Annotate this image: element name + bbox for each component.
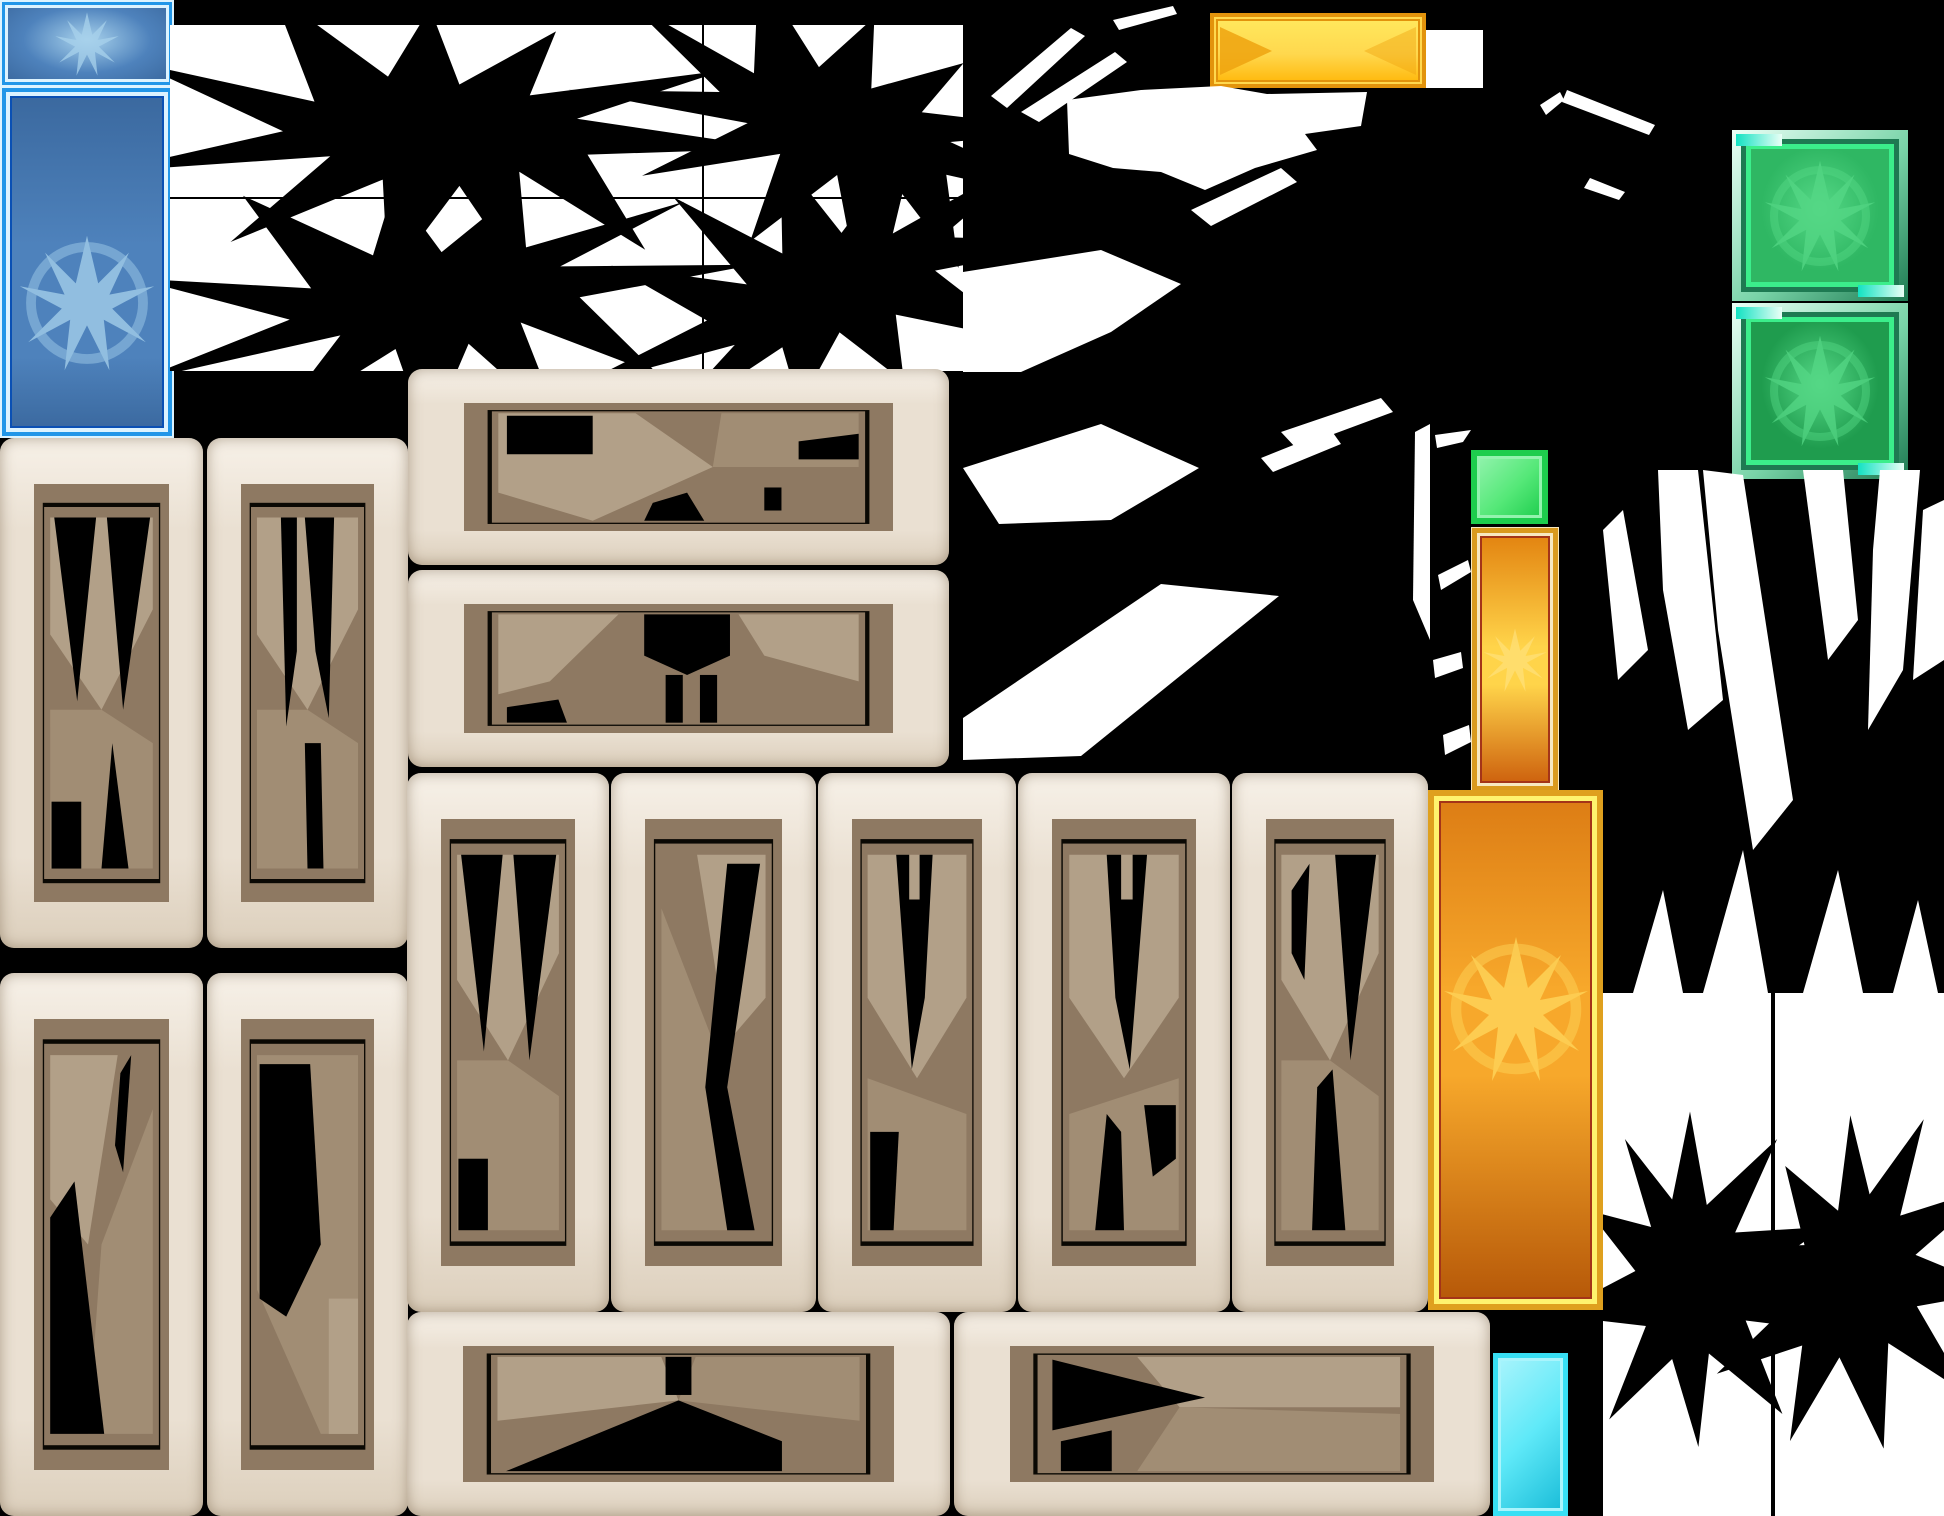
- mask-fragment-field: [963, 0, 1430, 790]
- stone-plate: [0, 973, 203, 1516]
- gold-panel-sprite: [1428, 790, 1603, 1310]
- teal-corner-accent: [1858, 285, 1904, 297]
- stone-plate-carving: [241, 484, 374, 902]
- stone-plate: [611, 773, 816, 1312]
- stone-plate: [0, 438, 203, 948]
- stone-plate: [207, 973, 408, 1516]
- star-emblem-icon: [1482, 627, 1548, 693]
- stone-plate-carving: [852, 819, 982, 1266]
- star-emblem-icon: [1760, 158, 1880, 273]
- green-gem-sprite-1: [1732, 130, 1908, 301]
- star-emblem-icon: [52, 11, 122, 77]
- blue-panel-tall-sprite: [2, 88, 172, 436]
- stone-bar-carving: [464, 403, 893, 531]
- burst-mask-sheet: [170, 25, 963, 371]
- stone-plate-carving: [1266, 819, 1394, 1266]
- stone-plate: [207, 438, 408, 948]
- white-tile-sprite: [1426, 30, 1483, 88]
- atlas-seam: [170, 197, 963, 199]
- stone-bar: [408, 369, 949, 565]
- stone-plate-carving: [441, 819, 575, 1266]
- stone-bar-carving: [463, 1346, 894, 1482]
- stone-plate: [407, 773, 609, 1312]
- mask-slashes: [1433, 430, 1473, 800]
- stone-bar: [954, 1312, 1490, 1516]
- cyan-tile-sprite: [1493, 1353, 1568, 1516]
- mask-slash-field: [1484, 80, 1734, 220]
- green-gem-face: [1746, 317, 1894, 465]
- stone-plate-carving: [34, 484, 169, 902]
- stone-plate-carving: [1052, 819, 1196, 1266]
- stone-plate-carving: [34, 1019, 169, 1470]
- star-emblem-icon: [1441, 934, 1591, 1084]
- green-gem-sprite-2: [1732, 303, 1908, 479]
- burst-mask-field: [1603, 470, 1944, 1516]
- texture-atlas-canvas: [0, 0, 1944, 1516]
- stone-plate: [1232, 773, 1428, 1312]
- green-tile-sprite: [1471, 450, 1548, 524]
- green-gem-face: [1746, 144, 1894, 287]
- mask-slashes: [1484, 80, 1734, 220]
- stone-bar: [408, 570, 949, 767]
- teal-corner-accent: [1736, 134, 1782, 146]
- mask-slash-field: [1433, 430, 1473, 800]
- blue-gem-small-sprite: [2, 2, 172, 85]
- stone-plate: [1018, 773, 1230, 1312]
- stone-bar-carving: [1010, 1346, 1434, 1482]
- stone-bar-carving: [464, 604, 893, 733]
- stone-plate-carving: [645, 819, 782, 1266]
- stone-bar: [407, 1312, 950, 1516]
- gold-bar-sprite: [1472, 528, 1558, 791]
- burst-masks-right: [1603, 470, 1944, 1516]
- star-emblem-icon: [17, 233, 157, 373]
- star-emblem-icon: [1760, 334, 1880, 449]
- teal-corner-accent: [1736, 307, 1782, 319]
- stone-plate: [818, 773, 1016, 1312]
- stone-plate-carving: [241, 1019, 374, 1470]
- green-gem-frame: [1741, 139, 1899, 292]
- mask-fragments: [963, 0, 1430, 790]
- green-gem-frame: [1741, 312, 1899, 470]
